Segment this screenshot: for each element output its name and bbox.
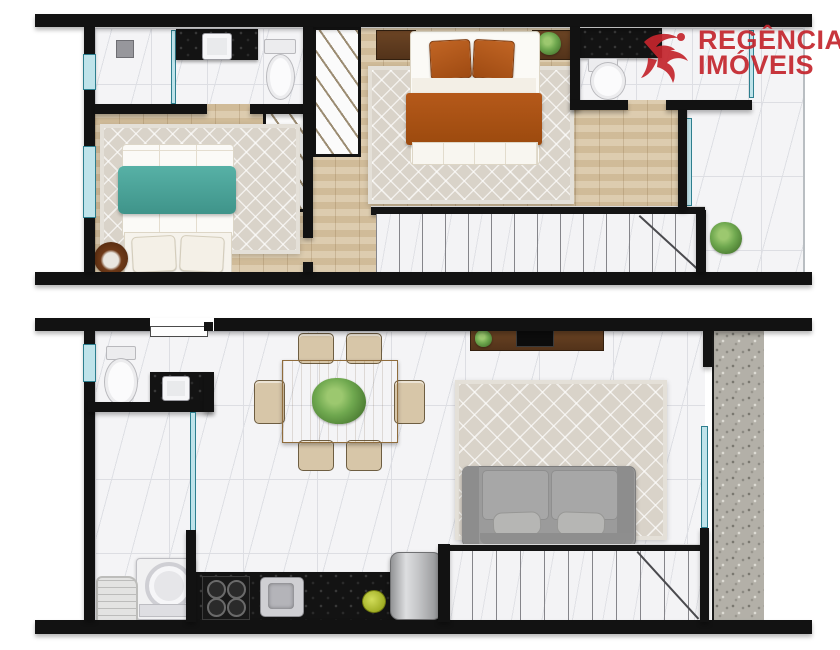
side-yard-wall-stub [703,331,712,367]
bathroom1-sink [202,33,232,60]
nightstand-plant [538,32,561,55]
dining-chair-bottom-right [346,440,382,471]
laundry-basket [96,576,138,624]
brand-name-line2: IMÓVEIS [698,53,840,78]
brand-logo-text: REGÊNCIA IMÓVEIS [698,28,840,78]
entrance-door [150,326,208,337]
brand-logo-icon [640,28,692,84]
balcony-plant [710,222,742,254]
bathroom2-wall-left [570,27,580,110]
dining-chair-right [394,380,425,424]
upper-stairs-wall-right [696,210,706,272]
dining-chair-bottom-left [298,440,334,471]
upper-window-bedroom1 [83,146,96,218]
lower-stairs-wall-right [700,528,709,622]
powder-wall-bottom [88,402,214,412]
hall-wall-right [678,110,687,210]
powder-room-sink [162,376,190,401]
dining-chair-left [254,380,285,424]
glass-partition [190,412,196,548]
lower-staircase [448,551,700,620]
lower-wall-bottom [35,620,812,634]
lower-window-powder [83,344,96,382]
upper-window-bathroom1 [83,54,96,90]
kitchen-wall-right [438,544,450,622]
laundry-wall [186,530,196,622]
floorplan-canvas: REGÊNCIA IMÓVEIS [0,0,840,650]
bedroom1-wall-right-stub [303,262,313,272]
bathroom2-wall-bottom-a [570,100,628,110]
upper-staircase [376,214,698,272]
tv [516,330,554,347]
upper-wall-top [35,14,812,27]
side-yard-gravel [712,331,764,620]
bathroom1-wall-a [95,104,207,114]
refrigerator [390,552,442,620]
brand-logo: REGÊNCIA IMÓVEIS [640,28,840,84]
mid-wall-top [303,27,313,114]
bedroom1-wall-right [303,114,313,238]
bathroom1-wall-b [250,104,310,114]
side-yard-glass-door [701,426,708,528]
shower-head [116,40,134,58]
tv-console-plant [475,330,492,347]
upper-wall-bottom [35,272,812,285]
wardrobe-bedroom2 [313,27,361,157]
powder-wall-right [204,372,214,412]
pet-bed [94,242,128,275]
entrance-door-hinge [204,322,213,331]
dining-centerpiece-plant [312,378,366,424]
fruit-bowl [362,590,386,613]
bathroom2-wall-bottom-b [666,100,752,110]
